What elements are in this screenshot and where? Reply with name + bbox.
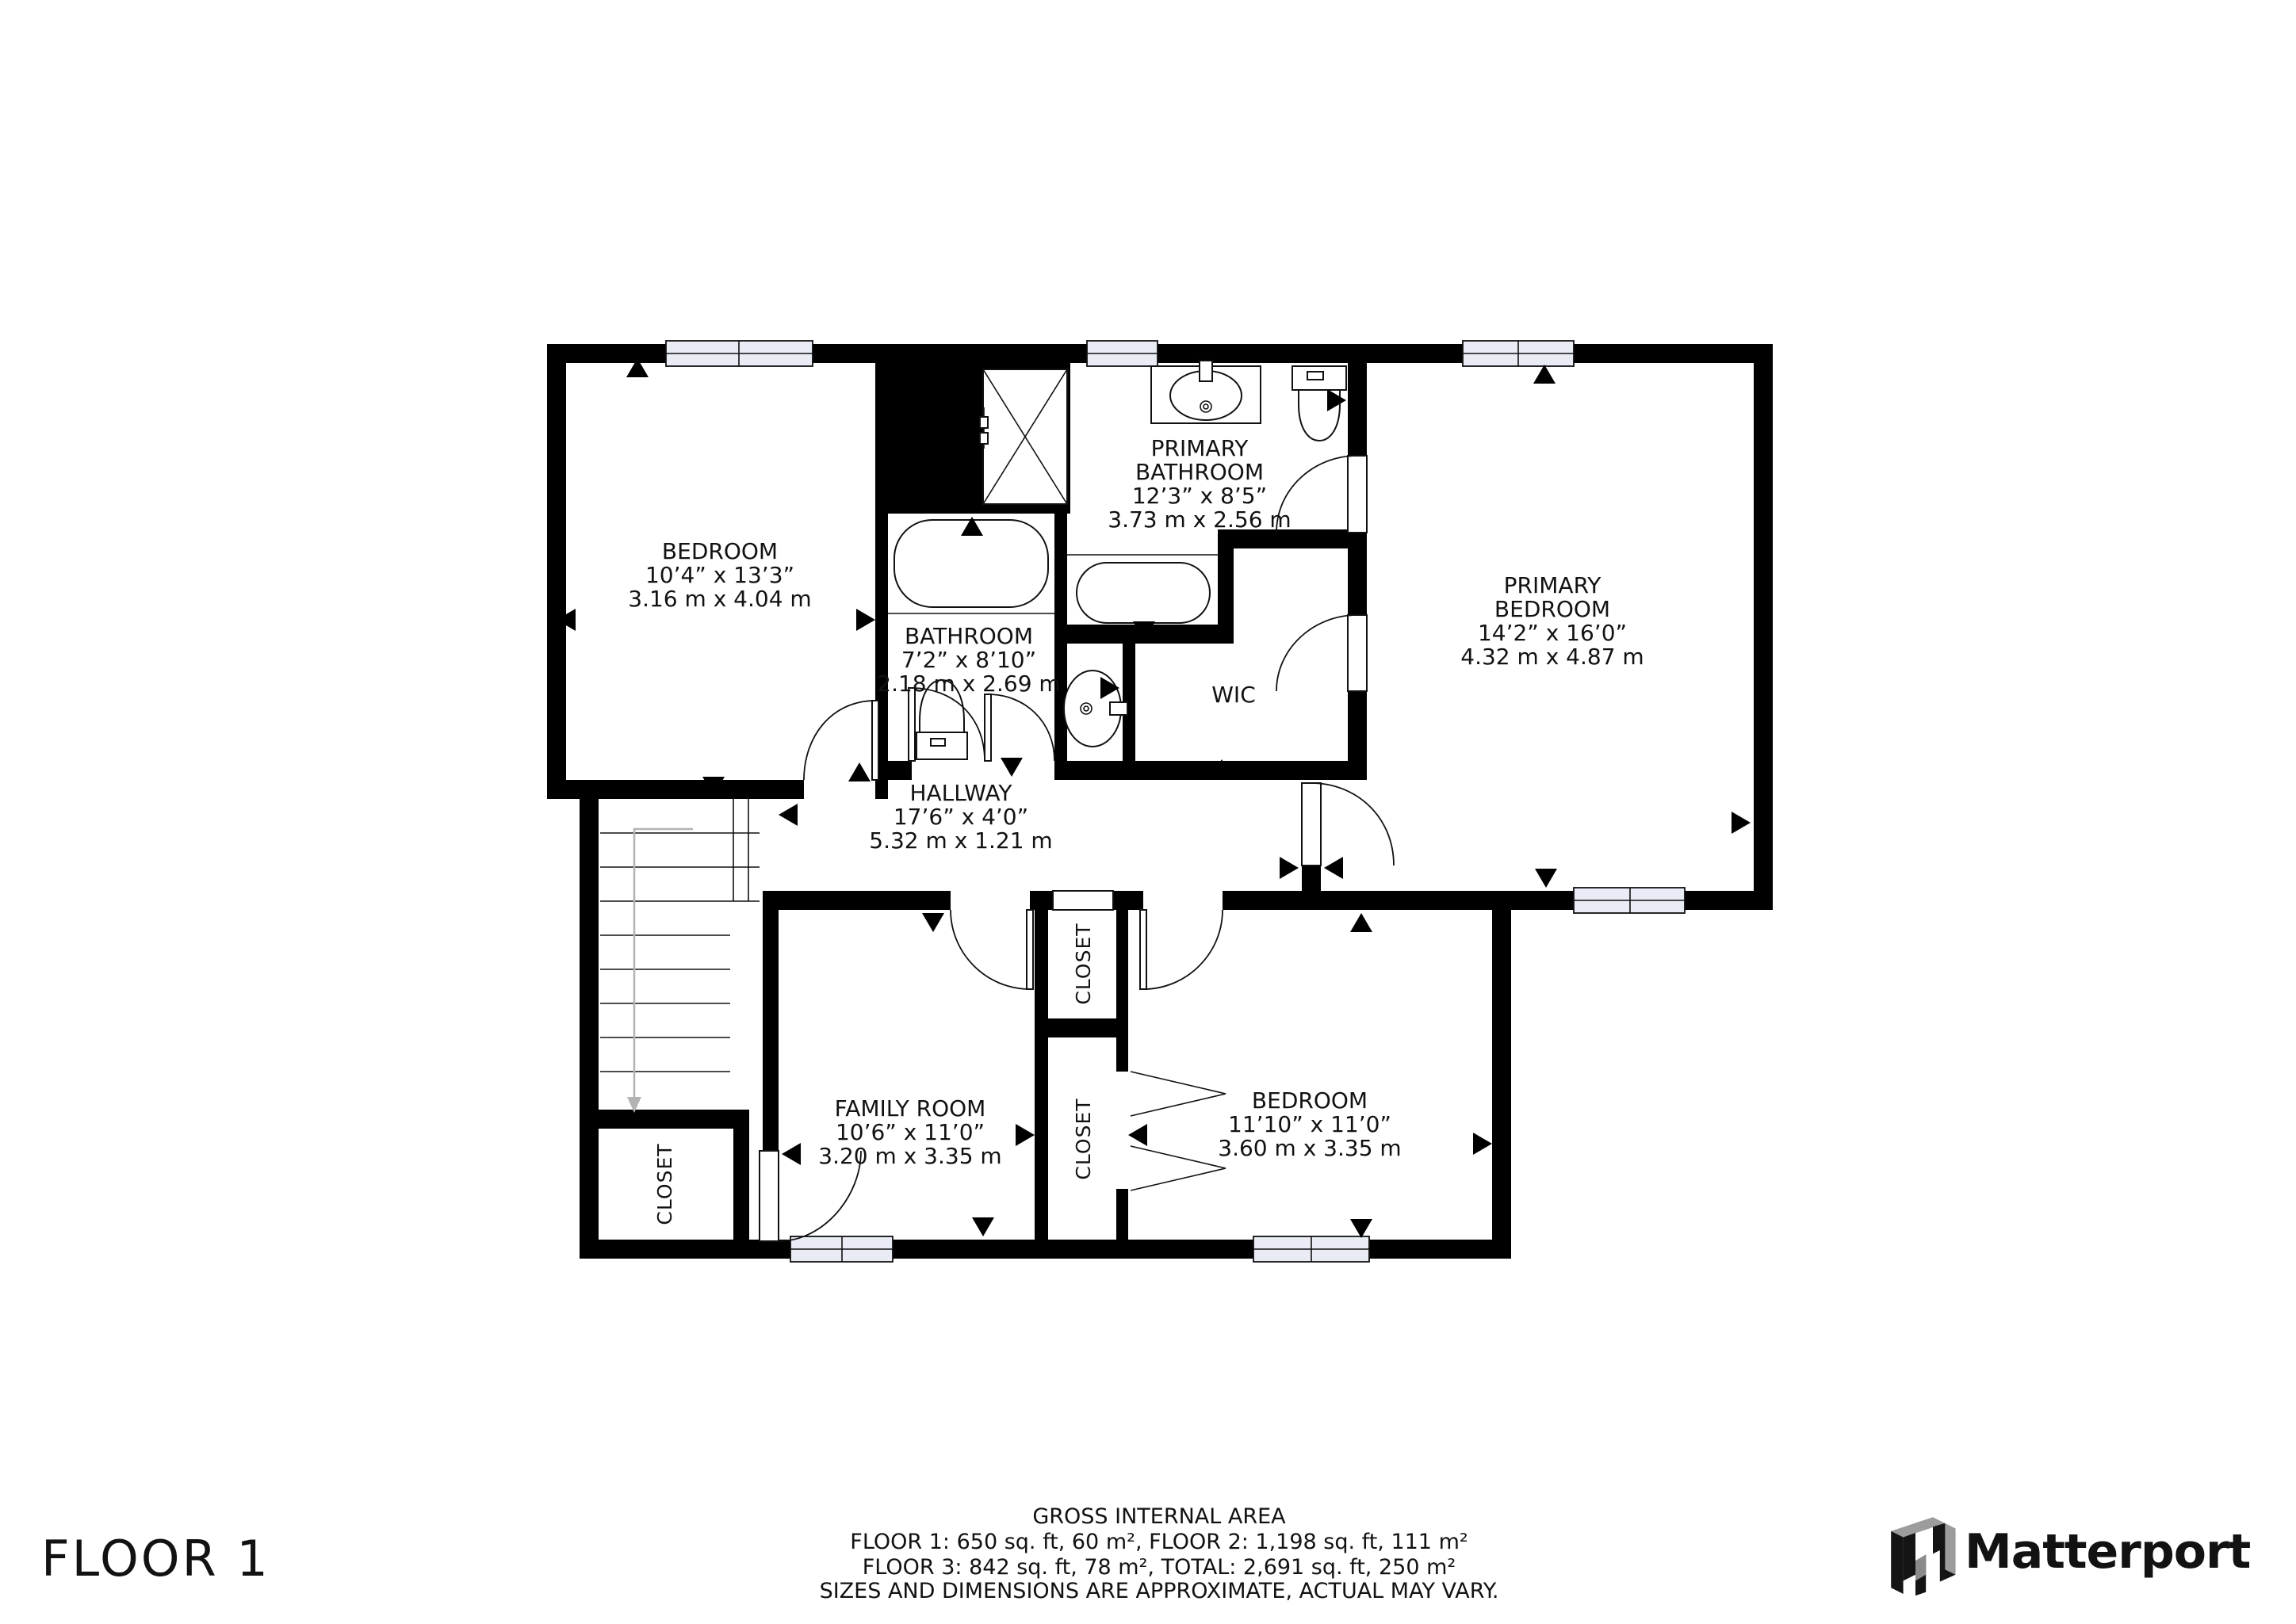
door-primary-bedroom [1302, 783, 1321, 865]
door-family-room-side [760, 1151, 779, 1241]
svg-text:5.32 m x 1.21 m: 5.32 m x 1.21 m [869, 827, 1052, 854]
svg-text:BEDROOM: BEDROOM [1494, 596, 1610, 622]
matterport-logo: Matterport [1891, 1517, 2250, 1595]
label-closet-stairs: CLOSET [653, 1143, 676, 1225]
floor-plan-page: BEDROOM 10’4” x 13’3” 3.16 m x 4.04 m PR… [0, 0, 2296, 1624]
svg-text:BATHROOM: BATHROOM [1135, 459, 1264, 485]
door-bedroom-tl [872, 701, 878, 780]
label-hallway: HALLWAY [909, 780, 1012, 806]
area-line1: FLOOR 1: 650 sq. ft, 60 m², FLOOR 2: 1,1… [850, 1530, 1468, 1554]
room-labels: BEDROOM 10’4” x 13’3” 3.16 m x 4.04 m PR… [628, 435, 1644, 1225]
bathtub-primary [1067, 555, 1218, 623]
window-primary-bedroom-bottom [1574, 888, 1685, 913]
svg-text:2.18 m x 2.69 m: 2.18 m x 2.69 m [877, 671, 1060, 697]
label-bedroom-tl: BEDROOM [662, 538, 778, 564]
label-wic: WIC [1211, 682, 1256, 708]
window-bedroom-bottom [1253, 1236, 1369, 1262]
shower [980, 369, 1067, 504]
staircase [600, 799, 760, 1113]
svg-text:17’6” x 4’0”: 17’6” x 4’0” [894, 804, 1028, 830]
svg-text:12’3” x 8’5”: 12’3” x 8’5” [1132, 483, 1267, 509]
faucet-icon [1110, 702, 1127, 715]
stair-direction-arrow-icon [634, 829, 693, 1097]
area-title: GROSS INTERNAL AREA [1032, 1504, 1286, 1529]
door-wic [1348, 615, 1367, 691]
shower-door-handle-icon [980, 417, 988, 428]
door-bathroom [909, 688, 915, 761]
floor-plan-canvas: BEDROOM 10’4” x 13’3” 3.16 m x 4.04 m PR… [0, 0, 2296, 1624]
svg-text:10’6” x 11’0”: 10’6” x 11’0” [836, 1119, 985, 1145]
label-primary-bedroom: PRIMARY [1504, 572, 1602, 598]
window-primary-bedroom-top [1463, 341, 1574, 366]
vanity-sink-primary [1151, 361, 1261, 423]
label-bathroom: BATHROOM [905, 623, 1033, 649]
svg-text:11’10” x 11’0”: 11’10” x 11’0” [1228, 1111, 1391, 1137]
window-primary-bath-top [1087, 341, 1158, 366]
area-disclaimer: SIZES AND DIMENSIONS ARE APPROXIMATE, AC… [820, 1579, 1499, 1603]
label-closet-bedroom: CLOSET [1072, 1098, 1095, 1179]
svg-text:7’2” x 8’10”: 7’2” x 8’10” [901, 647, 1036, 673]
window-bedroom-top [666, 341, 813, 366]
door-bedroom-br [1140, 910, 1146, 989]
label-family-room: FAMILY ROOM [835, 1095, 986, 1122]
floor-label: FLOOR 1 [41, 1530, 270, 1588]
svg-text:3.60 m x 3.35 m: 3.60 m x 3.35 m [1218, 1135, 1401, 1161]
svg-text:4.32 m x 4.87 m: 4.32 m x 4.87 m [1460, 644, 1644, 670]
matterport-logo-icon [1891, 1517, 1955, 1595]
faucet-icon [1200, 361, 1212, 381]
svg-text:14’2” x 16’0”: 14’2” x 16’0” [1478, 620, 1627, 646]
svg-text:3.20 m x 3.35 m: 3.20 m x 3.35 m [818, 1143, 1001, 1169]
matterport-wordmark: Matterport [1965, 1524, 2251, 1580]
label-bedroom-br: BEDROOM [1252, 1087, 1368, 1114]
pedestal-sink [1064, 671, 1127, 747]
area-line2: FLOOR 3: 842 sq. ft, 78 m², TOTAL: 2,691… [863, 1555, 1456, 1580]
label-closet-hall: CLOSET [1072, 923, 1095, 1004]
label-primary-bathroom: PRIMARY [1151, 435, 1249, 461]
svg-text:3.73 m x 2.56 m: 3.73 m x 2.56 m [1108, 506, 1291, 533]
label-bedroom-tl-dims-m: 3.16 m x 4.04 m [628, 586, 811, 612]
door-family-room [1027, 910, 1033, 989]
door-sink-room [985, 694, 991, 761]
label-bedroom-tl-dims: 10’4” x 13’3” [645, 562, 794, 588]
bifold-door-icon [1131, 1072, 1226, 1116]
door-primary-bathroom [1348, 456, 1367, 533]
bifold-door-icon [1131, 1146, 1226, 1190]
door-hall-closet [1053, 891, 1113, 910]
gross-internal-area: GROSS INTERNAL AREA FLOOR 1: 650 sq. ft,… [820, 1504, 1499, 1603]
window-family-room-bottom [790, 1236, 893, 1262]
